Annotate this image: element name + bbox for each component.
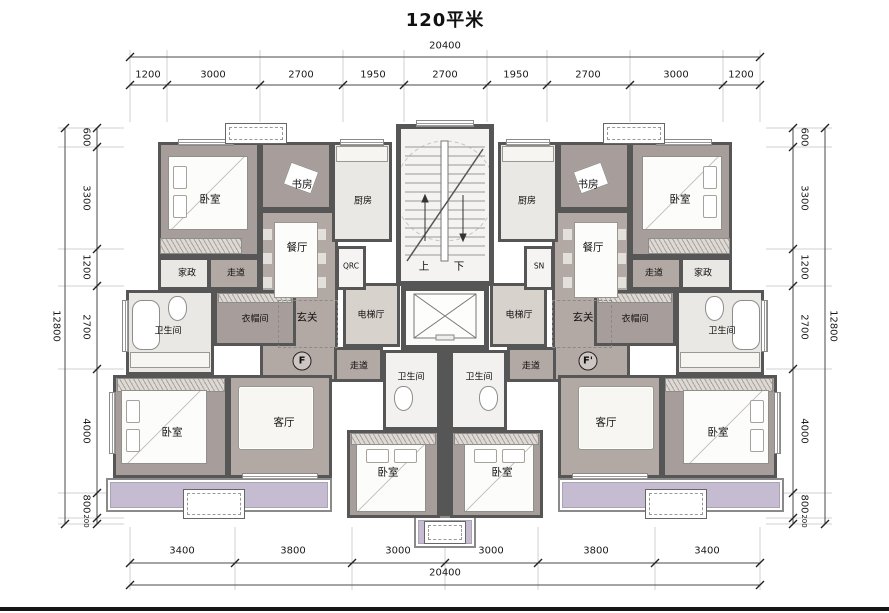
dim-top-total: 20400 — [429, 41, 461, 52]
dim-bottom-seg-2: 3800 — [280, 546, 305, 557]
dim-bottom-seg-6: 3400 — [694, 546, 719, 557]
dim-bottom-seg-3: 3000 — [385, 546, 410, 557]
dim-left-seg-7: 200 — [82, 514, 90, 527]
dim-right-total: 12800 — [828, 310, 839, 342]
label-bathroom-left: 卫生间 — [154, 324, 181, 337]
label-shaft-sn: SN — [534, 262, 544, 271]
label-bedroom-mid-right: 卧室 — [492, 465, 513, 480]
label-corridor-top-right: 走道 — [645, 266, 663, 279]
floor-plan-canvas: 120平米 20400 1200 3000 2700 1950 2700 195… — [0, 0, 889, 613]
label-dining-right: 餐厅 — [583, 240, 604, 255]
dim-left-seg-5: 4000 — [81, 418, 92, 443]
dim-right-seg-3: 1200 — [799, 254, 810, 279]
dim-left-seg-3: 1200 — [81, 254, 92, 279]
dim-top-seg-7: 2700 — [575, 70, 600, 81]
window — [774, 392, 781, 454]
dim-top-seg-3: 2700 — [288, 70, 313, 81]
ac-platform-bottom-left — [183, 489, 245, 519]
label-bedroom-bottom-left: 卧室 — [162, 425, 183, 440]
dim-left-seg-6: 800 — [81, 494, 92, 513]
dim-left-total: 12800 — [51, 310, 62, 342]
dim-right-seg-4: 2700 — [799, 314, 810, 339]
window — [340, 139, 384, 146]
label-kitchen-right: 厨房 — [518, 194, 536, 207]
stairwell — [396, 124, 494, 286]
label-dining-left: 餐厅 — [287, 240, 308, 255]
dim-top-seg-2: 3000 — [200, 70, 225, 81]
ac-platform-center — [424, 521, 466, 544]
page-title: 120平米 — [406, 6, 485, 32]
label-corridor-mid-right: 走道 — [522, 359, 540, 372]
dim-top-seg-1: 1200 — [135, 70, 160, 81]
party-wall-center — [440, 350, 450, 516]
dim-top-seg-5: 2700 — [432, 70, 457, 81]
label-bedroom-top-right: 卧室 — [670, 192, 691, 207]
dim-top-seg-6: 1950 — [503, 70, 528, 81]
label-stairs-down: 下 — [454, 259, 465, 274]
dim-right-seg-1: 600 — [799, 127, 810, 146]
dim-top-seg-8: 3000 — [663, 70, 688, 81]
label-bedroom-bottom-right: 卧室 — [708, 425, 729, 440]
label-bedroom-mid-left: 卧室 — [378, 465, 399, 480]
toilet-right — [705, 296, 724, 321]
label-stairs-up: 上 — [419, 259, 430, 274]
dim-left-seg-2: 3300 — [81, 185, 92, 210]
label-housekeeping-left: 家政 — [178, 266, 196, 279]
bathtub-right — [732, 300, 760, 350]
vanity-counter-left — [130, 352, 210, 368]
room-bathroom-mid-right — [450, 350, 507, 430]
vanity-counter-right — [680, 352, 760, 368]
wardrobe-top-left — [160, 238, 242, 254]
label-bathroom-mid-left: 卫生间 — [397, 370, 424, 383]
dining-table-left — [274, 222, 318, 298]
dining-chairs-left — [263, 229, 272, 240]
dim-right-seg-6: 800 — [799, 494, 810, 513]
kitchen-counter-left — [336, 146, 388, 162]
window — [416, 120, 474, 127]
label-living-right: 客厅 — [596, 415, 617, 430]
dim-top-seg-9: 1200 — [728, 70, 753, 81]
dim-top-seg-4: 1950 — [360, 70, 385, 81]
window — [242, 473, 318, 480]
label-corridor-mid-left: 走道 — [350, 359, 368, 372]
label-bedroom-top-left: 卧室 — [200, 192, 221, 207]
unit-mark-left: F — [293, 352, 312, 371]
ac-platform-top-right — [603, 123, 665, 144]
window — [572, 473, 648, 480]
window — [761, 300, 768, 352]
toilet-mid-right — [479, 386, 498, 411]
dining-chairs-right — [563, 229, 572, 240]
label-shaft-qrc: QRC — [343, 262, 359, 271]
label-bathroom-right: 卫生间 — [708, 324, 735, 337]
page-bottom-rule — [0, 607, 889, 611]
label-elevator-hall-left: 电梯厅 — [357, 308, 384, 321]
dim-right-seg-2: 3300 — [799, 185, 810, 210]
ac-platform-bottom-right — [645, 489, 707, 519]
label-kitchen-left: 厨房 — [354, 194, 372, 207]
label-housekeeping-right: 家政 — [694, 266, 712, 279]
dim-right-seg-5: 4000 — [799, 418, 810, 443]
unit-mark-right: F' — [579, 352, 598, 371]
stairs-drawing — [401, 129, 489, 281]
window — [109, 392, 116, 454]
label-elevator-hall-right: 电梯厅 — [505, 308, 532, 321]
dim-bottom-total: 20400 — [429, 568, 461, 579]
label-foyer-right: 玄关 — [573, 310, 594, 325]
elevator-shaft — [401, 286, 489, 350]
dim-bottom-seg-1: 3400 — [169, 546, 194, 557]
toilet-left — [168, 296, 187, 321]
dim-left-seg-4: 2700 — [81, 314, 92, 339]
label-foyer-left: 玄关 — [297, 310, 318, 325]
toilet-mid-left — [394, 386, 413, 411]
dim-bottom-seg-4: 3000 — [478, 546, 503, 557]
window — [506, 139, 550, 146]
dim-bottom-seg-5: 3800 — [583, 546, 608, 557]
label-cloakroom-left: 衣帽间 — [241, 312, 268, 325]
window — [122, 300, 129, 352]
elevator-drawing — [406, 291, 484, 345]
label-cloakroom-right: 衣帽间 — [621, 312, 648, 325]
dim-left-seg-1: 600 — [81, 127, 92, 146]
label-corridor-top-left: 走道 — [227, 266, 245, 279]
kitchen-counter-right — [502, 146, 554, 162]
label-study-left: 书房 — [292, 177, 313, 192]
label-bathroom-mid-right: 卫生间 — [465, 370, 492, 383]
dim-right-seg-7: 200 — [800, 514, 808, 527]
dining-table-right — [574, 222, 618, 298]
ac-platform-top-left — [225, 123, 287, 144]
wardrobe-top-right — [648, 238, 730, 254]
label-study-right: 书房 — [578, 177, 599, 192]
label-living-left: 客厅 — [274, 415, 295, 430]
